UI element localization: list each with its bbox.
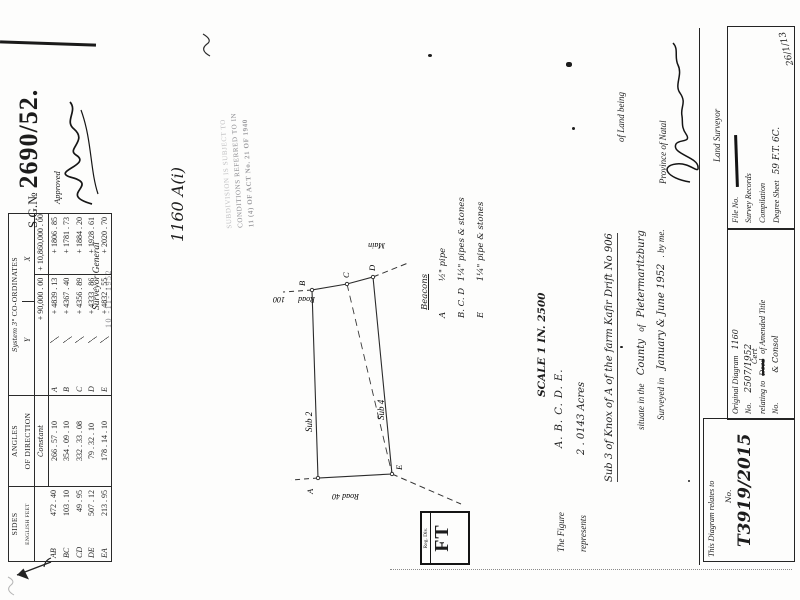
- ink-speck: [572, 127, 575, 130]
- struck-word: Deed: [758, 359, 767, 376]
- paper-edge-mark: [0, 41, 96, 47]
- date-stamp: 10 -11- 1952: [104, 269, 113, 328]
- sg-number-label: S.G.№: [25, 192, 40, 228]
- struck-entry: [734, 135, 739, 187]
- beacon-point-b: [310, 288, 313, 291]
- sides-header: SIDES ENGLISH FEET: [9, 487, 35, 562]
- beacon-label-d: D: [367, 264, 377, 272]
- original-diagram-panel: Original Diagram 1160 No. 2507/1952 rela…: [727, 228, 795, 420]
- beacon-point-c: [345, 282, 348, 285]
- situate-line: situate in the County of Pietermaritzbur…: [636, 230, 647, 430]
- road-extension-dashed: [283, 290, 312, 292]
- scale-note: SCALE 1 IN. 2500: [536, 293, 548, 397]
- beacon-label-a: A: [305, 488, 315, 495]
- main-road-label-road: Road: [297, 295, 316, 304]
- relates-to-panel: This Diagram relates to No. T3919/2015: [703, 418, 795, 562]
- sub4-label: Sub 4: [376, 399, 386, 420]
- sides-subheader: ENGLISH FEET: [22, 490, 35, 558]
- legend-title: Beacons: [420, 197, 430, 310]
- degree-sheet-value: 59 F.T. 6C.: [772, 127, 782, 175]
- road40-label: Road 40: [332, 492, 360, 501]
- pen-mark: [196, 32, 216, 58]
- surveyor-general-title: Surveyor General: [92, 242, 102, 310]
- coordinates-header: System 3° CO-ORDINATES Y X: [9, 214, 35, 396]
- sg-number: S.G.№ 2690/52.: [14, 89, 44, 228]
- correction-word: Cert: [751, 348, 759, 364]
- file-no-label: File No.: [731, 197, 740, 223]
- relates-no-label: No.: [724, 419, 733, 503]
- table-row: BC103 . 10 354 . 09 . 10 B + 4367 . 40+ …: [61, 214, 74, 562]
- internal-boundary-dashed: [347, 284, 392, 474]
- band-divider: [699, 28, 700, 565]
- area-value: 2 . 0143 Acres: [576, 382, 587, 455]
- surveyor-general-signature: [48, 94, 106, 212]
- beacon-label-c: C: [341, 272, 351, 278]
- main-road-width-label: 100: [273, 295, 285, 304]
- beacons-legend: Beacons A ½" pipe B. C. D 1¼" pipes & st…: [420, 197, 486, 318]
- county-value: County: [636, 339, 647, 375]
- land-surveyor-title: Land Surveyor: [712, 109, 722, 162]
- beacon-point-d: [371, 275, 374, 278]
- legend-item: B. C. D 1¼" pipes & stones: [457, 197, 467, 318]
- sub2-label: Sub 2: [304, 411, 314, 432]
- consol-note: & Consol: [771, 335, 780, 372]
- survey-records-label: Survey Records: [744, 27, 753, 223]
- legend-item: E 1¼" pipe & stones: [476, 197, 486, 318]
- reg-div-label: Reg. Div.: [422, 513, 431, 563]
- records-panel: File No. Survey Records Compilation Degr…: [727, 26, 795, 230]
- of-land-being-label: of Land being: [616, 92, 626, 142]
- act-conditions-stamp: SUBDIVISION IS SUBJECT TO CONDITIONS REF…: [219, 112, 256, 229]
- table-row: AB472 . 40 266 . 57 . 10 A + 4839 . 13+ …: [48, 214, 61, 562]
- angles-header: ANGLES OF DIRECTION: [9, 396, 35, 487]
- represents-label: represents: [578, 515, 588, 552]
- road-extension-dashed: [392, 474, 461, 504]
- ink-speck: [688, 480, 690, 482]
- compilation-label: Compilation: [758, 27, 767, 223]
- road-extension-dashed: [291, 478, 318, 480]
- beacon-point-e: [390, 472, 393, 475]
- figure-boundary: [312, 277, 392, 478]
- system-label: System 3°: [11, 318, 19, 352]
- relates-to-heading: This Diagram relates to: [707, 419, 716, 557]
- surveyed-line: Surveyed in January & June 1952 . by me.: [656, 229, 667, 420]
- diagram-ref-number: 1160 A(i): [168, 167, 187, 242]
- scanned-survey-diagram-page: SIDES ENGLISH FEET ANGLES OF DIRECTION S…: [0, 0, 800, 600]
- constant-row: Constant + 90,000 . 00 + 10,860,000 . 00: [35, 214, 49, 562]
- figure-label: The Figure: [556, 512, 566, 552]
- road-extension-dashed: [373, 263, 408, 277]
- ink-speck: [566, 62, 572, 67]
- pencil-mark: [2, 575, 18, 597]
- survey-date-value: January & June 1952: [656, 264, 667, 370]
- ink-speck: [620, 346, 623, 348]
- reg-division-stamp: Reg. Div. FT: [420, 511, 470, 565]
- perforation-line: [390, 569, 792, 570]
- situate-label: situate in the: [636, 384, 646, 431]
- sg-number-value: 2690/52.: [14, 89, 43, 189]
- legend-item: A ½" pipe: [438, 197, 448, 318]
- original-diagram-label: Original Diagram: [731, 356, 740, 414]
- beacon-label-b: B: [297, 281, 307, 286]
- beacon-label-e: E: [394, 464, 404, 471]
- beacon-point-a: [316, 476, 319, 479]
- ink-speck: [428, 54, 432, 57]
- relates-to-number: T3919/2015: [735, 419, 755, 547]
- survey-diagram-document: SIDES ENGLISH FEET ANGLES OF DIRECTION S…: [0, 0, 800, 600]
- degree-sheet-label: Degree Sheet: [772, 180, 781, 223]
- y-column-label: Y: [22, 302, 35, 378]
- town-value: Pietermaritzburg: [636, 230, 647, 317]
- x-column-label: X: [22, 217, 35, 302]
- table-row: CD49 . 95 332 . 33 . 08 C + 4356 . 89+ 1…: [74, 214, 87, 562]
- figure-beacon-list: A. B. C. D. E.: [554, 369, 565, 448]
- original-diagram-ref: 1160: [731, 329, 740, 349]
- main-road-label-main: Main: [368, 241, 386, 250]
- land-surveyor-signature: [652, 38, 704, 188]
- reg-div-code: FT: [431, 513, 454, 563]
- property-description: Sub 3 of Knox of A of the farm Kafir Dri…: [604, 233, 618, 482]
